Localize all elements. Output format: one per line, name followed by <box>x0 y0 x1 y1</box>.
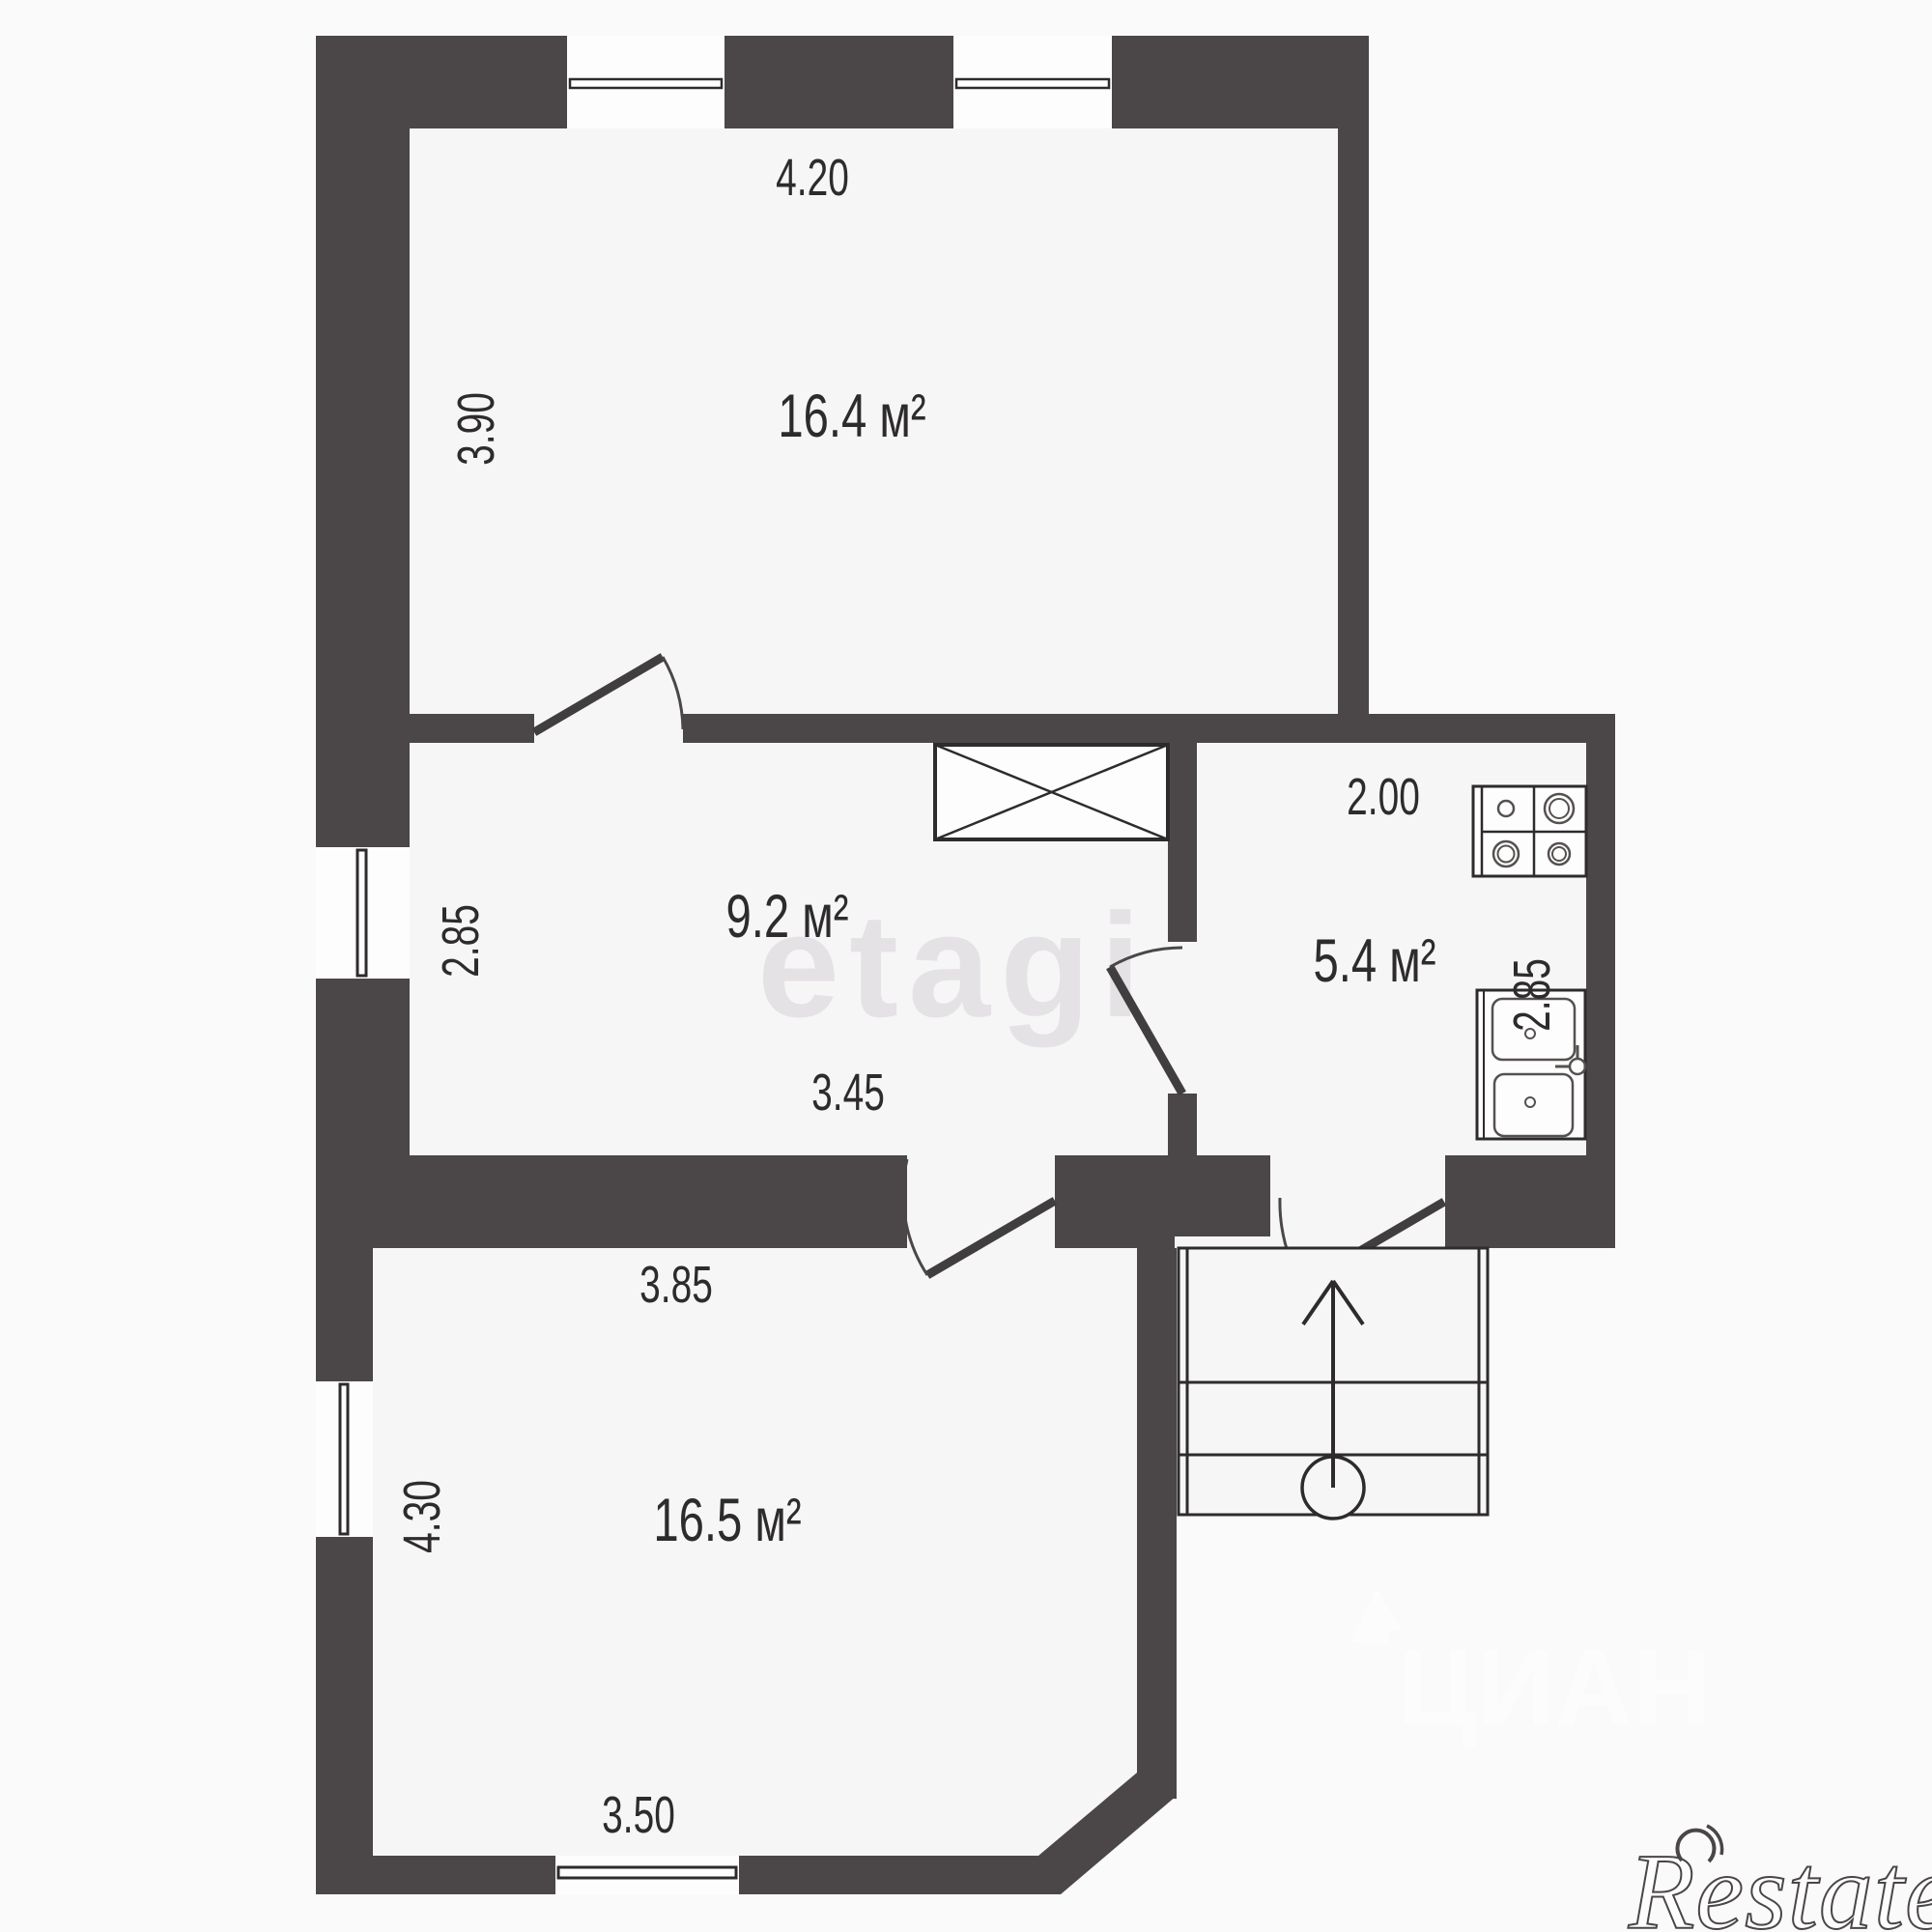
svg-text:9.2 м²: 9.2 м² <box>725 882 848 950</box>
svg-text:3.50: 3.50 <box>602 1785 675 1844</box>
svg-text:5.4 м²: 5.4 м² <box>1313 926 1435 994</box>
svg-text:4.20: 4.20 <box>776 148 849 207</box>
svg-text:2.85: 2.85 <box>1502 958 1561 1032</box>
svg-text:2.85: 2.85 <box>431 904 490 978</box>
svg-text:Restate: Restate <box>1628 1833 1932 1932</box>
svg-text:ЦИАН: ЦИАН <box>1398 1628 1711 1748</box>
svg-text:3.85: 3.85 <box>639 1255 713 1314</box>
svg-text:3.90: 3.90 <box>446 392 505 466</box>
svg-text:2.00: 2.00 <box>1347 767 1420 826</box>
svg-text:16.4 м²: 16.4 м² <box>778 382 925 449</box>
svg-text:3.45: 3.45 <box>811 1063 885 1122</box>
svg-text:4.30: 4.30 <box>392 1480 451 1553</box>
svg-text:16.5 м²: 16.5 м² <box>653 1486 801 1553</box>
